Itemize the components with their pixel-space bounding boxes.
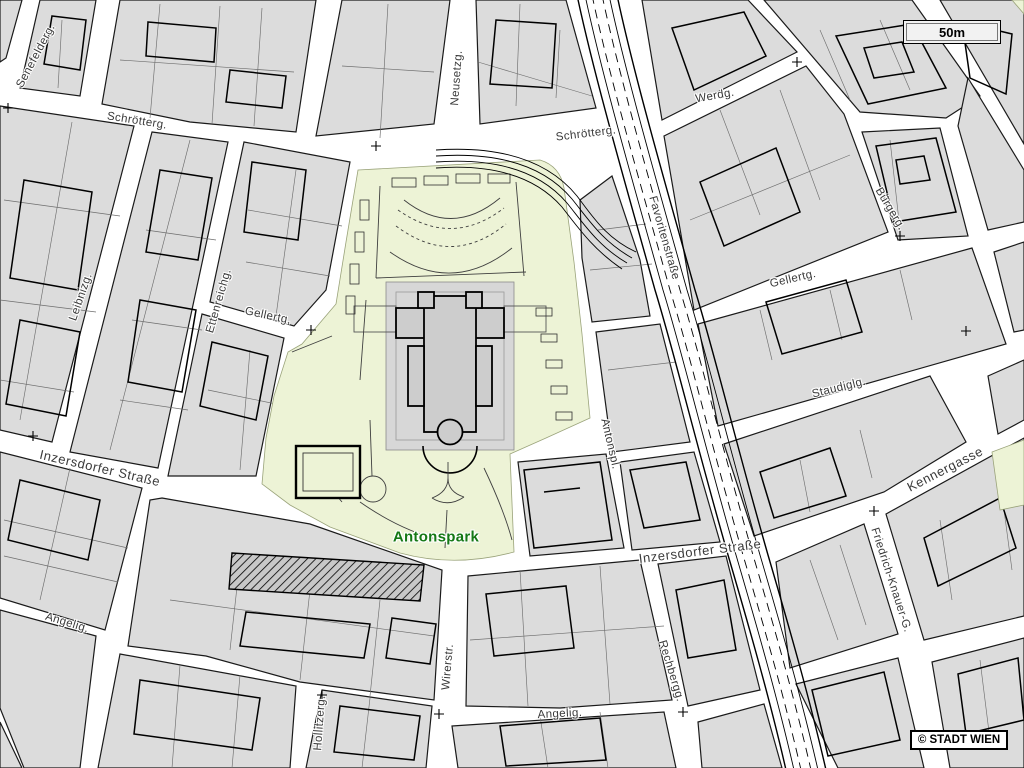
copyright-badge: © STADT WIEN xyxy=(910,730,1008,750)
copyright-label: © STADT WIEN xyxy=(918,734,1000,746)
playground xyxy=(296,446,360,498)
scale-bar-label: 50m xyxy=(939,25,965,40)
map-drawing xyxy=(0,0,1024,768)
scale-bar-inner: 50m xyxy=(906,23,998,41)
city-map[interactable]: Senefelderg. Schrötterg. Neusetzg. Schrö… xyxy=(0,0,1024,768)
park-label-antonspark: Antonspark xyxy=(393,529,479,546)
scale-bar: 50m xyxy=(903,20,1001,44)
street-label-angeligasse-mid: Angelig. xyxy=(537,707,582,721)
